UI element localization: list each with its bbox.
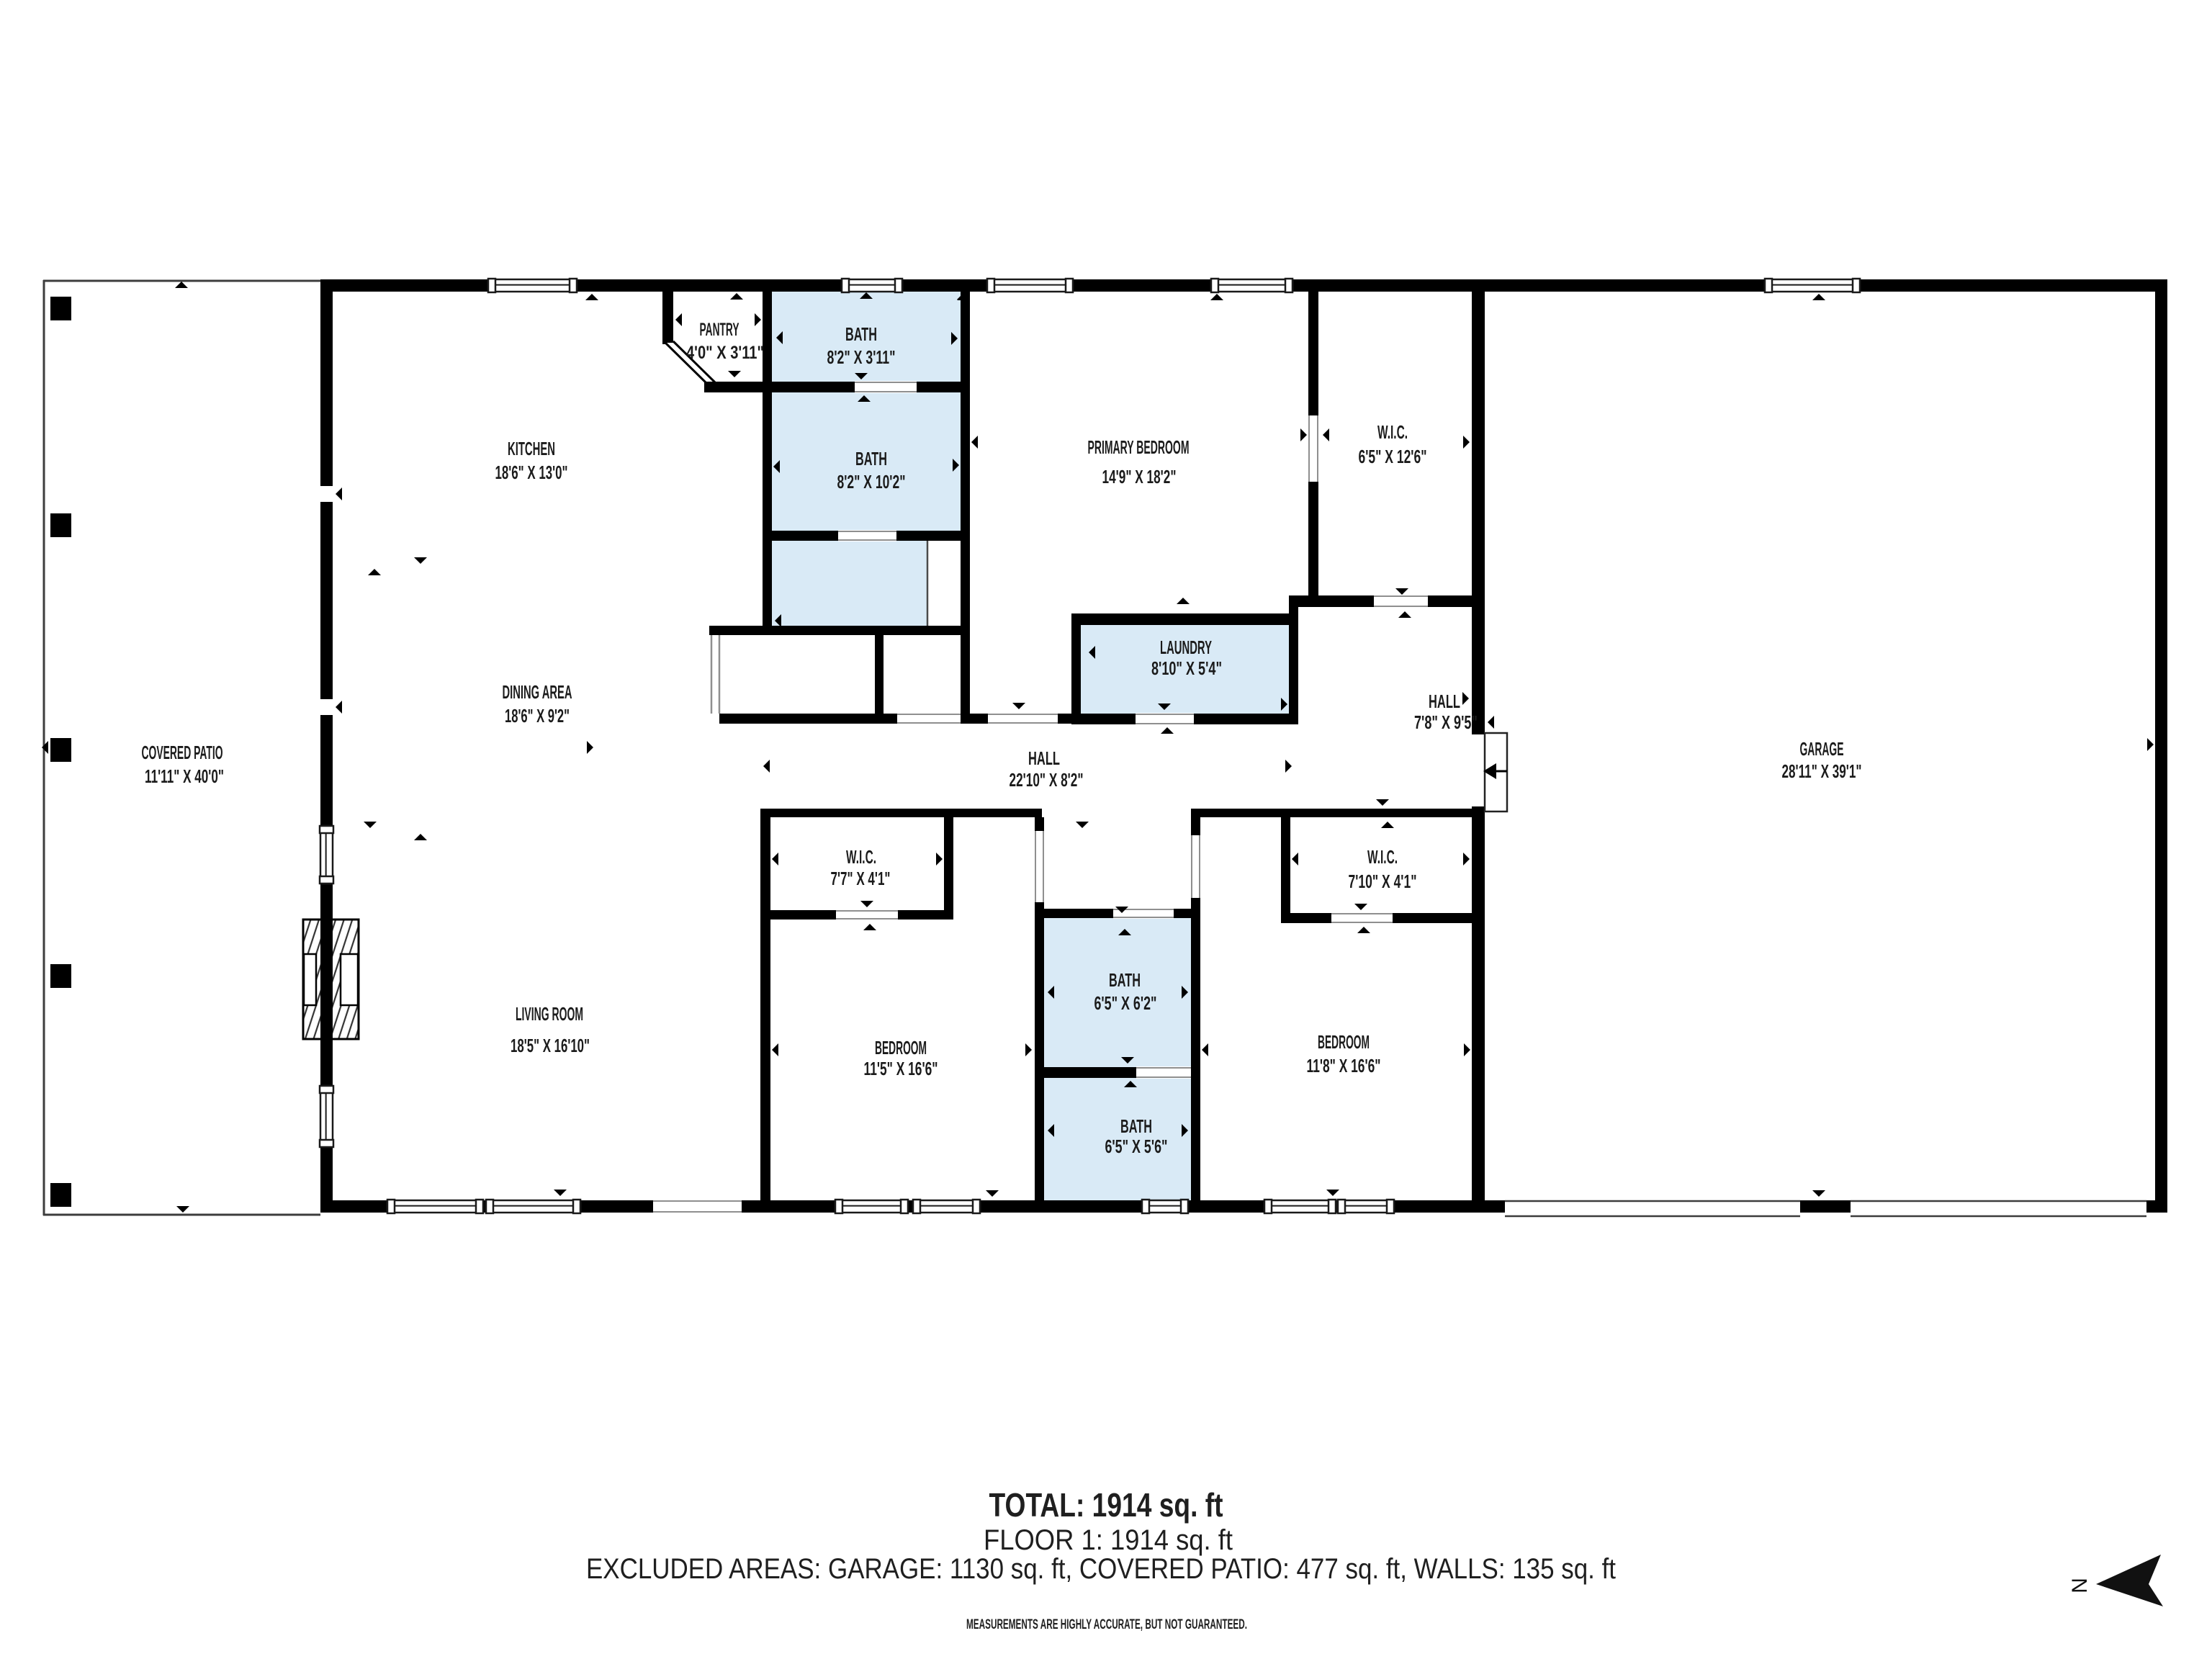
svg-text:GARAGE: GARAGE [1800,738,1844,760]
svg-text:7'8" X 9'5": 7'8" X 9'5" [1414,711,1478,733]
svg-text:TOTAL: 1914 sq. ft: TOTAL: 1914 sq. ft [989,1486,1223,1524]
svg-text:28'11" X 39'1": 28'11" X 39'1" [1782,760,1862,782]
svg-text:7'10" X 4'1": 7'10" X 4'1" [1349,871,1417,892]
svg-text:W.I.C.: W.I.C. [1367,846,1398,868]
svg-text:BEDROOM: BEDROOM [875,1037,927,1058]
svg-text:KITCHEN: KITCHEN [508,438,555,459]
svg-text:FLOOR 1: 1914 sq. ft: FLOOR 1: 1914 sq. ft [984,1524,1233,1556]
svg-text:6'5" X 5'6": 6'5" X 5'6" [1105,1136,1168,1157]
svg-text:HALL: HALL [1028,747,1060,769]
svg-text:PANTRY: PANTRY [700,320,739,340]
svg-text:MEASUREMENTS ARE HIGHLY ACCURA: MEASUREMENTS ARE HIGHLY ACCURATE, BUT NO… [966,1617,1247,1632]
svg-text:22'10" X 8'2": 22'10" X 8'2" [1010,769,1084,791]
svg-text:7'7" X 4'1": 7'7" X 4'1" [831,868,891,889]
svg-text:DINING AREA: DINING AREA [503,681,572,703]
svg-text:BEDROOM: BEDROOM [1318,1031,1370,1053]
svg-text:LAUNDRY: LAUNDRY [1160,637,1212,658]
svg-text:BATH: BATH [845,323,877,345]
svg-text:14'9" X 18'2": 14'9" X 18'2" [1102,466,1177,487]
svg-text:8'2" X 3'11": 8'2" X 3'11" [827,346,896,368]
svg-text:BATH: BATH [1109,969,1141,991]
svg-text:18'6" X 9'2": 18'6" X 9'2" [505,705,570,727]
svg-text:BATH: BATH [855,448,887,469]
svg-text:6'5" X 12'6": 6'5" X 12'6" [1359,446,1427,467]
svg-text:11'11" X 40'0": 11'11" X 40'0" [145,765,224,787]
svg-text:11'5" X 16'6": 11'5" X 16'6" [864,1058,938,1079]
svg-text:8'2" X 10'2": 8'2" X 10'2" [837,471,906,493]
svg-text:PRIMARY BEDROOM: PRIMARY BEDROOM [1088,436,1190,458]
svg-text:W.I.C.: W.I.C. [1377,421,1408,443]
svg-text:LIVING ROOM: LIVING ROOM [516,1003,583,1025]
svg-text:11'8" X 16'6": 11'8" X 16'6" [1307,1055,1381,1076]
svg-text:18'6" X 13'0": 18'6" X 13'0" [495,462,568,483]
svg-text:18'5" X 16'10": 18'5" X 16'10" [511,1035,590,1056]
svg-text:BATH: BATH [1120,1115,1152,1137]
svg-text:COVERED PATIO: COVERED PATIO [142,742,223,763]
svg-text:EXCLUDED AREAS: GARAGE: 1130 s: EXCLUDED AREAS: GARAGE: 1130 sq. ft, COV… [586,1553,1616,1585]
svg-text:W.I.C.: W.I.C. [846,846,876,868]
svg-text:N: N [2068,1578,2092,1593]
svg-text:6'5" X 6'2": 6'5" X 6'2" [1094,992,1157,1014]
svg-text:4'0" X 3'11": 4'0" X 3'11" [686,343,764,363]
svg-text:8'10" X 5'4": 8'10" X 5'4" [1151,657,1222,679]
svg-text:HALL: HALL [1429,691,1460,712]
